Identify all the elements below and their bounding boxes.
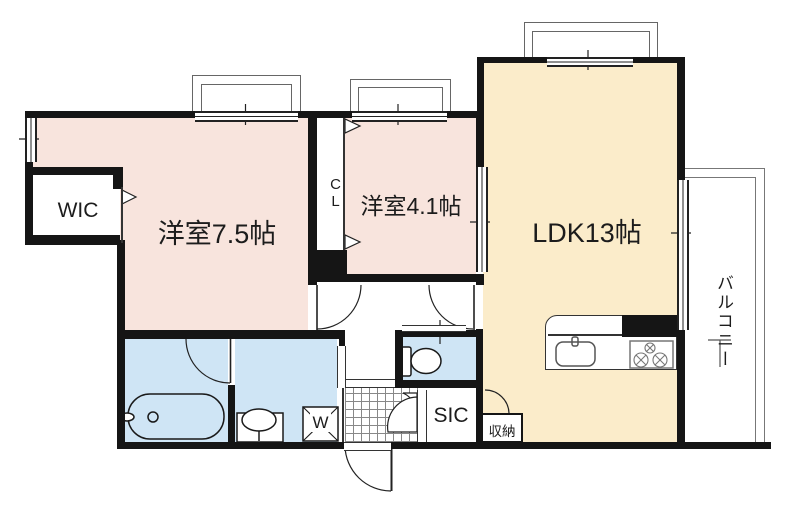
vanity-basin bbox=[242, 409, 276, 431]
bathtub-drain bbox=[148, 412, 158, 422]
toilet-bottom-wall bbox=[395, 380, 483, 388]
window-glass h bbox=[547, 57, 633, 67]
sic-label: SIC bbox=[424, 404, 478, 428]
washroom-sliding-door bbox=[337, 346, 346, 388]
ldk-right-wall bbox=[677, 330, 685, 448]
exterior-wall-left bbox=[117, 240, 125, 342]
wic-label: WIC bbox=[40, 199, 116, 223]
bath-top-wall bbox=[117, 330, 345, 339]
washroom-genkan-line bbox=[342, 388, 344, 442]
bathroom-door-arc bbox=[186, 339, 230, 383]
bath-divider-wall bbox=[228, 385, 235, 442]
balcony-label: バルコニー bbox=[706, 241, 736, 401]
bottom-wall bbox=[391, 442, 771, 449]
bedroom1-label: 洋室7.5帖 bbox=[117, 212, 317, 251]
closet-label: CL bbox=[317, 167, 344, 219]
bedroom2-label: 洋室4.1帖 bbox=[345, 187, 477, 221]
hall-door-arc bbox=[388, 397, 417, 432]
ldk-label: LDK13帖 bbox=[487, 211, 687, 250]
bedroom1-door-arc bbox=[317, 285, 361, 329]
toilet-bowl bbox=[411, 349, 441, 374]
window-glass v bbox=[25, 118, 37, 162]
wic-folding-door-icon bbox=[122, 190, 136, 204]
entrance-door-arc bbox=[345, 446, 391, 491]
sic-door-track bbox=[417, 390, 427, 442]
toilet-sliding-door bbox=[402, 325, 466, 332]
bathtub bbox=[128, 394, 224, 439]
ldk-left-wall bbox=[477, 57, 484, 118]
closet-folding-door-icon bbox=[345, 235, 360, 249]
wic-bottom-wall bbox=[25, 235, 120, 245]
gas-burners bbox=[634, 343, 667, 367]
entrance-threshold bbox=[344, 442, 391, 451]
wic-door-line bbox=[121, 187, 123, 243]
bedroom2-right-wall bbox=[476, 113, 484, 167]
hall-top-wall bbox=[317, 274, 477, 282]
kitchen-wall-block bbox=[622, 315, 677, 337]
wic-top-wall bbox=[25, 167, 123, 175]
sliding-door v bbox=[476, 167, 488, 272]
laundry-label: W bbox=[303, 413, 338, 433]
storage-door-arc bbox=[485, 390, 509, 413]
wic-left-wall bbox=[25, 167, 33, 243]
window-glass v bbox=[677, 180, 689, 330]
washroom-right-wall bbox=[339, 332, 345, 346]
closet-door-line bbox=[343, 118, 345, 250]
window-glass h bbox=[195, 111, 298, 122]
exterior-wall-left bbox=[117, 339, 125, 449]
storage-label: 収納 bbox=[481, 420, 523, 440]
ldk-door-arc bbox=[429, 285, 473, 329]
ldk-left-wall bbox=[476, 274, 484, 285]
floor-plan: 洋室7.5帖 洋室4.1帖 LDK13帖 WIC CL SIC 収納 W バルコ… bbox=[0, 0, 800, 512]
bottom-wall bbox=[117, 442, 345, 449]
ldk-right-wall bbox=[677, 57, 685, 180]
window-glass h bbox=[352, 111, 447, 122]
